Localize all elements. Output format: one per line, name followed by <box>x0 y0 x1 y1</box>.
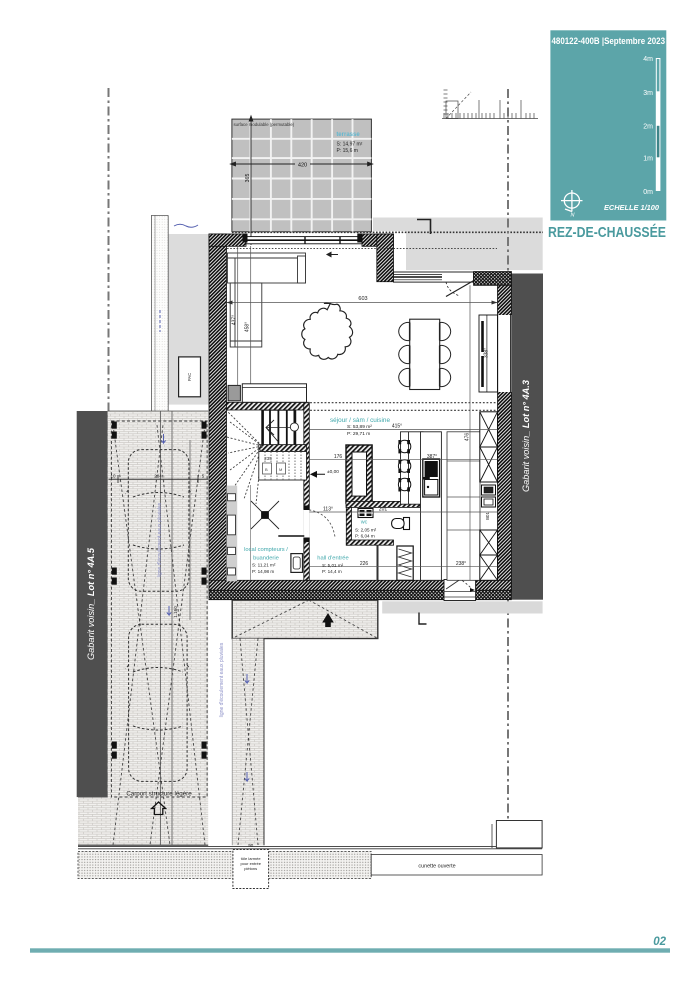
svg-text:REZ-DE-CHAUSSÉE: REZ-DE-CHAUSSÉE <box>548 224 666 241</box>
svg-text:437°: 437° <box>232 315 238 325</box>
svg-text:3m: 3m <box>643 90 653 97</box>
svg-text:235: 235 <box>264 456 272 461</box>
svg-text:415°: 415° <box>392 423 402 429</box>
svg-text:P: 6,04 m: P: 6,04 m <box>355 534 375 539</box>
svg-text:piétons: piétons <box>244 866 257 871</box>
svg-text:N: N <box>571 213 575 219</box>
svg-text:4m: 4m <box>643 56 653 63</box>
svg-text:±0,00: ±0,00 <box>327 469 339 475</box>
svg-text:238°: 238° <box>456 561 466 567</box>
svg-text:local compteurs /: local compteurs / <box>244 547 288 553</box>
svg-text:S: 5,01 m²: S: 5,01 m² <box>322 563 344 568</box>
svg-text:P: 14,4 m: P: 14,4 m <box>322 569 342 574</box>
svg-text:2m: 2m <box>643 124 653 131</box>
svg-text:90: 90 <box>248 843 254 848</box>
svg-text:480122-400B |Septembre 2023: 480122-400B |Septembre 2023 <box>552 36 666 46</box>
svg-text:113°: 113° <box>323 507 333 513</box>
svg-text:0m: 0m <box>643 189 653 196</box>
svg-text:P: 14,98 m: P: 14,98 m <box>252 569 274 574</box>
svg-text:ligne d'écoulement eaux pluvia: ligne d'écoulement eaux pluviales <box>219 642 225 717</box>
svg-text:Carport structure légère: Carport structure légère <box>126 791 192 798</box>
svg-text:387°: 387° <box>427 454 437 460</box>
svg-text:02: 02 <box>653 936 666 948</box>
svg-text:wc: wc <box>360 520 368 526</box>
svg-text:hall d'entrée: hall d'entrée <box>317 556 348 562</box>
svg-text:226: 226 <box>360 561 369 567</box>
svg-text:S: 2,05 m²: S: 2,05 m² <box>355 528 377 533</box>
svg-text:PAC: PAC <box>187 373 192 381</box>
svg-text:Gabarit voisin_ Lot n° 4A.3: Gabarit voisin_ Lot n° 4A.3 <box>521 380 531 492</box>
svg-text:284: 284 <box>154 474 162 479</box>
svg-text:cunette ouverte: cunette ouverte <box>418 864 455 870</box>
svg-text:Gabarit voisin_ Lot n° 4A.5: Gabarit voisin_ Lot n° 4A.5 <box>86 547 96 660</box>
svg-text:P: 15,6 m: P: 15,6 m <box>337 148 358 154</box>
svg-text:S: 14,97 m²: S: 14,97 m² <box>337 142 363 148</box>
svg-text:M: M <box>279 467 282 472</box>
svg-text:B01: B01 <box>485 512 490 520</box>
svg-text:surface modulable (permutable): surface modulable (permutable) <box>234 122 295 127</box>
svg-text:458°: 458° <box>245 322 251 332</box>
svg-text:ligne d'écoulement eaux pluvia: ligne d'écoulement eaux pluviales <box>157 502 163 577</box>
svg-text:338°: 338° <box>484 348 490 358</box>
svg-text:ECHELLE 1/100: ECHELLE 1/100 <box>604 203 660 212</box>
svg-text:S: 11,21 m²: S: 11,21 m² <box>252 563 276 568</box>
svg-text:séjour / sàm / cuisine: séjour / sàm / cuisine <box>330 417 390 424</box>
svg-text:176: 176 <box>334 454 343 460</box>
svg-text:420: 420 <box>298 163 307 169</box>
svg-text:10: 10 <box>110 474 116 479</box>
svg-text:1.160: 1.160 <box>173 606 178 618</box>
svg-text:476: 476 <box>465 433 471 442</box>
svg-text:603: 603 <box>358 296 367 302</box>
svg-text:B: B <box>265 467 268 472</box>
svg-text:S: 53,89 m²: S: 53,89 m² <box>347 424 372 430</box>
svg-text:P: 29,71 m: P: 29,71 m <box>347 431 370 437</box>
svg-text:1m: 1m <box>643 156 653 163</box>
svg-text:terrasse: terrasse <box>336 132 360 138</box>
svg-text:buanderie: buanderie <box>253 556 279 562</box>
svg-text:201: 201 <box>379 507 388 513</box>
svg-text:365: 365 <box>245 174 251 183</box>
